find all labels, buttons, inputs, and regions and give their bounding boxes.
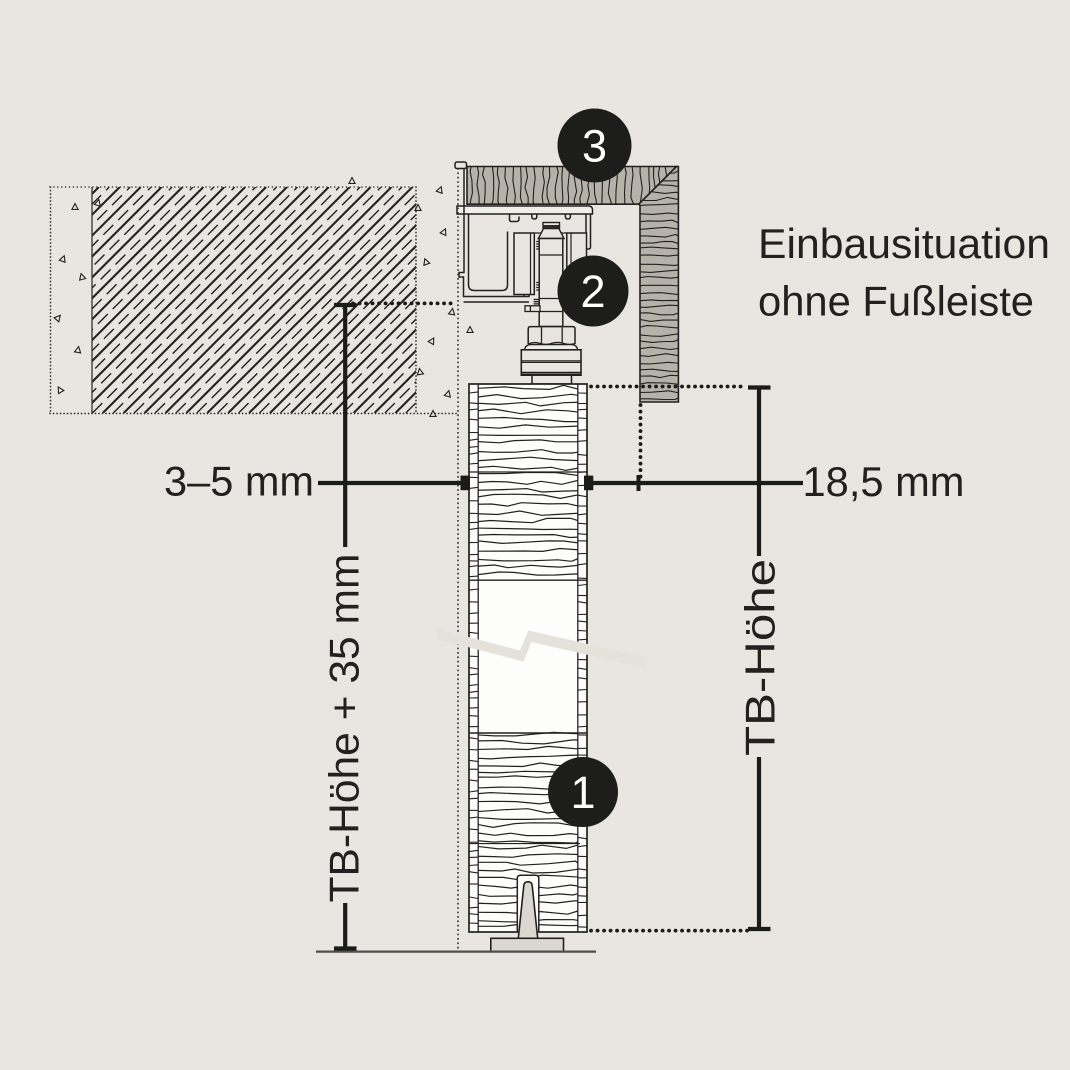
svg-text:ohne Fußleiste: ohne Fußleiste [758, 278, 1034, 325]
svg-text:Einbausituation: Einbausituation [758, 220, 1050, 267]
svg-text:1: 1 [570, 767, 595, 818]
svg-text:3: 3 [582, 121, 607, 172]
svg-text:2: 2 [580, 266, 605, 317]
svg-text:TB-Höhe: TB-Höhe [737, 559, 784, 756]
svg-text:18,5 mm: 18,5 mm [803, 458, 965, 505]
svg-text:TB-Höhe + 35 mm: TB-Höhe + 35 mm [321, 554, 368, 903]
svg-text:3–5 mm: 3–5 mm [164, 458, 314, 505]
